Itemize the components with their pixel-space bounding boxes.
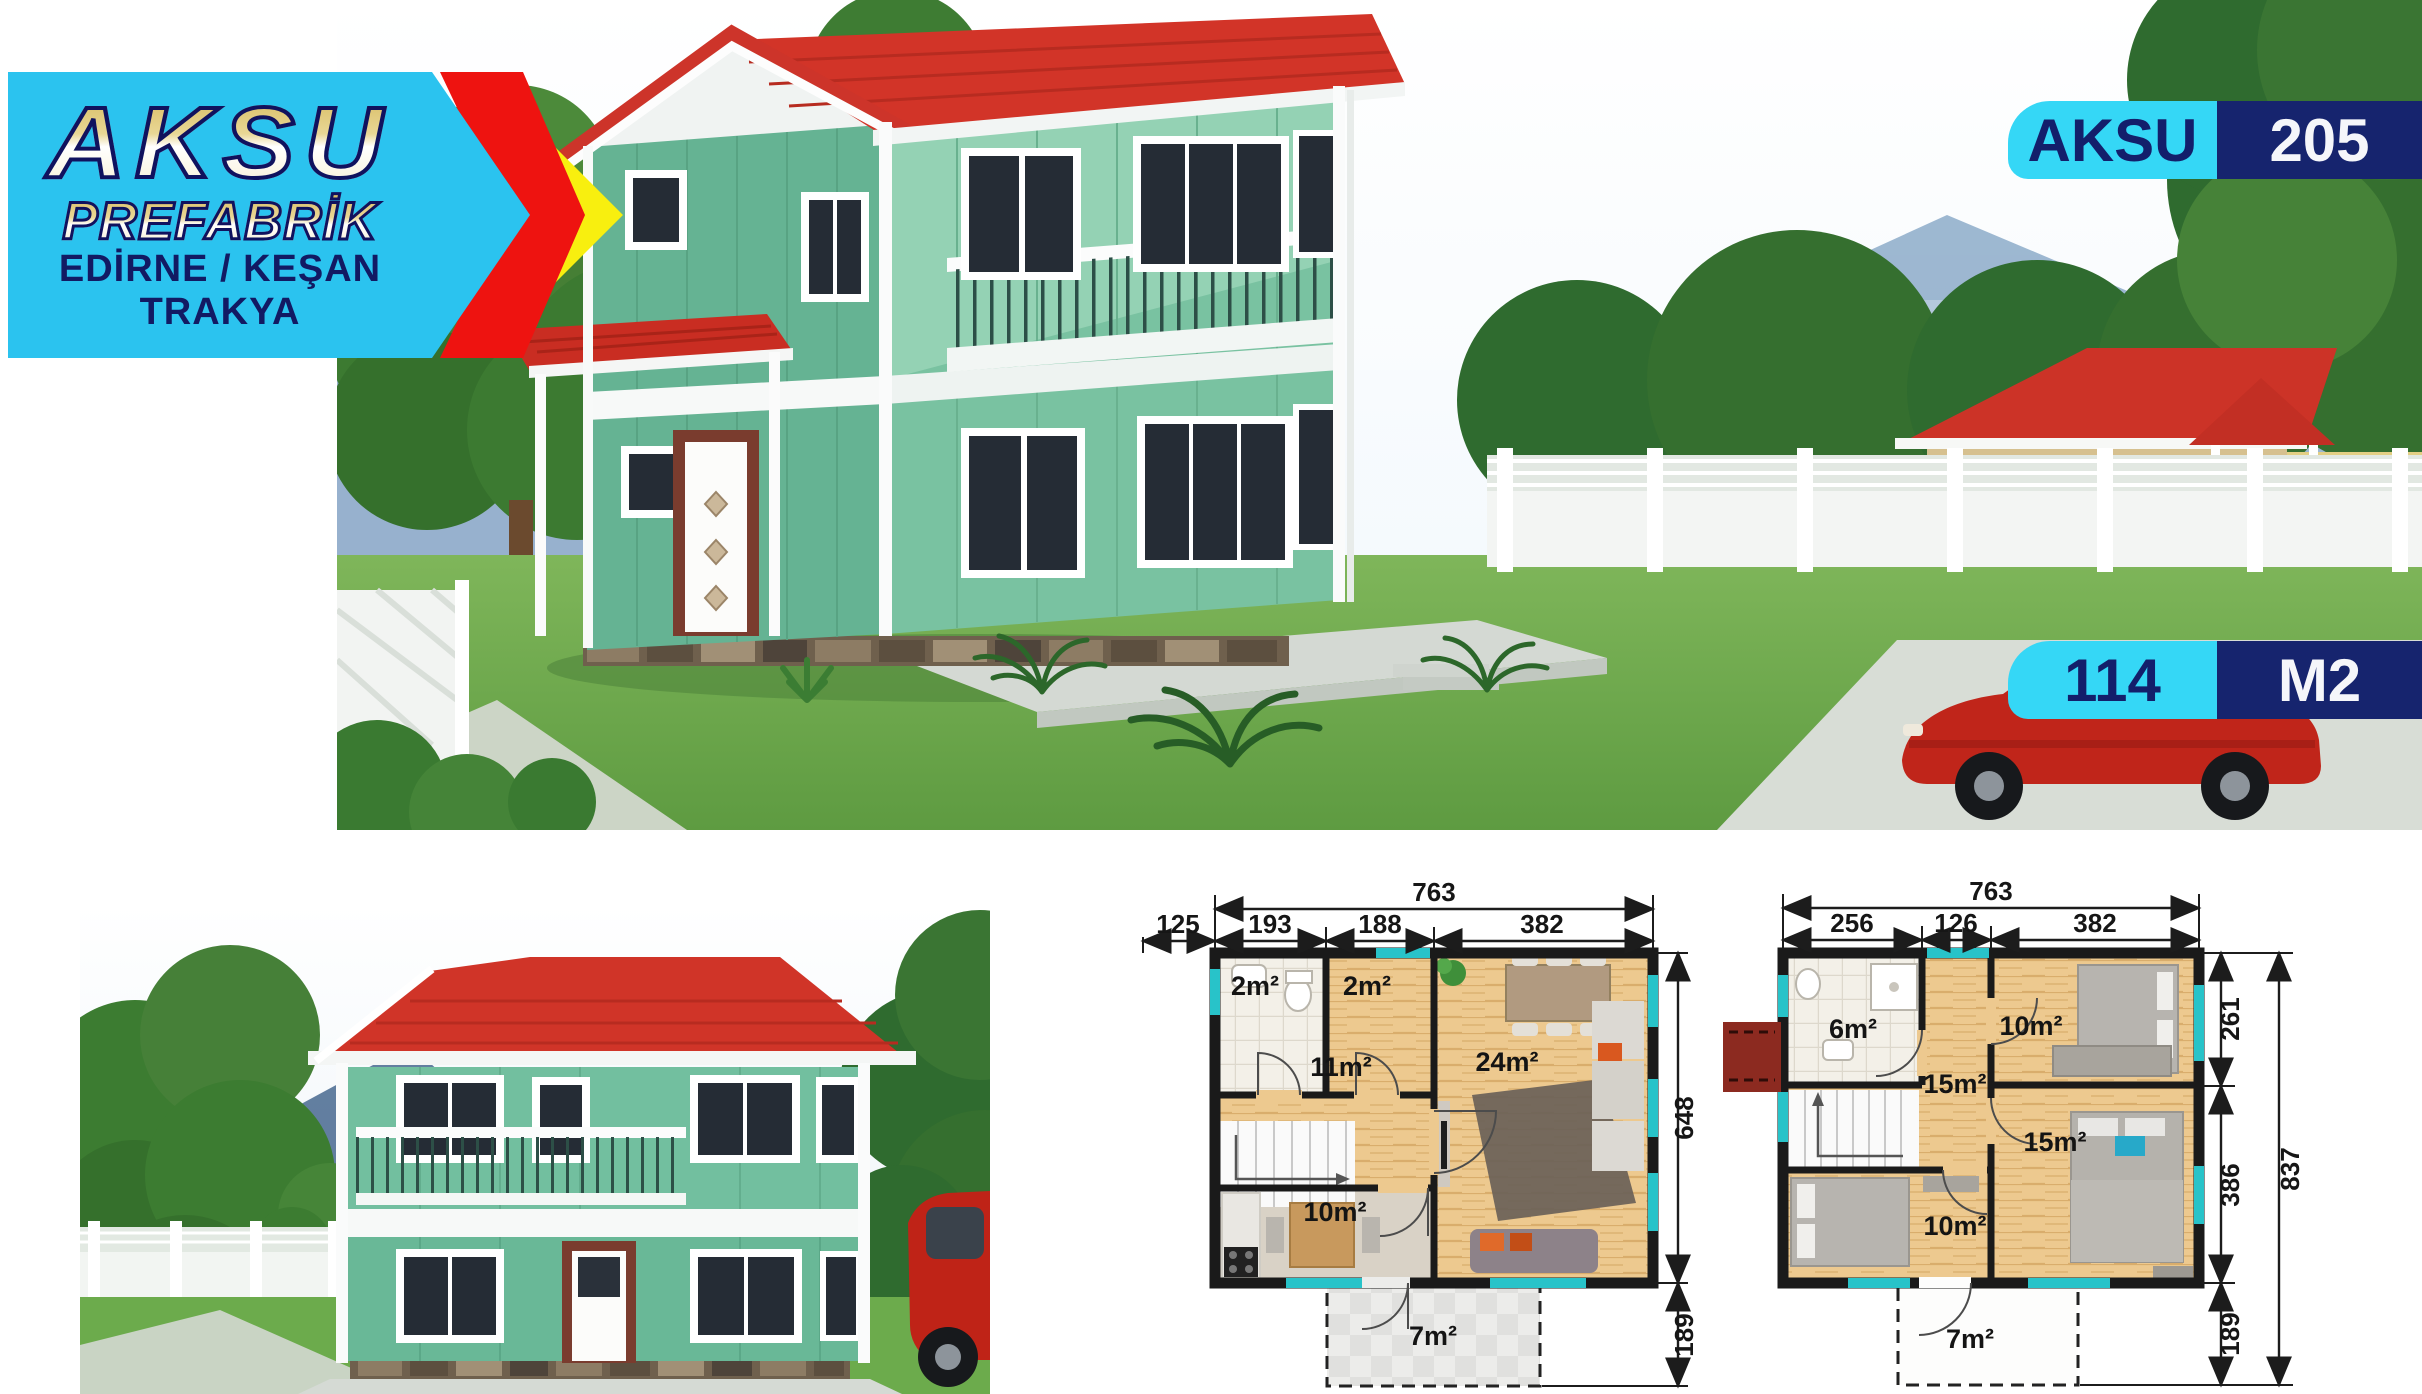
area-badge-unit: M2 — [2217, 641, 2422, 719]
dim-seg-125: 125 — [1156, 909, 1199, 939]
dim-seg-126: 126 — [1934, 908, 1977, 938]
room-label-entry: 2m² — [1343, 971, 1391, 1001]
area-badge-value: 114 — [2008, 641, 2217, 719]
dim-seg-193: 193 — [1248, 909, 1291, 939]
dimensions-top: 763 125 193 188 382 — [1143, 877, 1653, 953]
dim-right-648: 648 — [1669, 1096, 1699, 1139]
dim-seg-382: 382 — [1520, 909, 1563, 939]
dim-seg-382: 382 — [2073, 908, 2116, 938]
upper-floor-plan: 7m² — [1723, 880, 2323, 1394]
model-badge: AKSU 205 — [2008, 101, 2422, 179]
model-badge-number: 205 — [2217, 101, 2422, 179]
dim-total: 763 — [1969, 880, 2012, 906]
dim-seg-256: 256 — [1830, 908, 1873, 938]
dimensions-top: 763 256 126 382 — [1783, 880, 2199, 949]
brochure-page: AKSU PREFABRİK EDİRNE / KEŞAN TRAKYA AKS… — [0, 0, 2422, 1394]
dim-right-189: 189 — [1669, 1313, 1699, 1356]
model-badge-brand: AKSU — [2008, 101, 2217, 179]
furniture-bedroom2 — [2071, 1112, 2193, 1278]
dim-total: 763 — [1412, 877, 1455, 907]
logo-banner: AKSU PREFABRİK EDİRNE / KEŞAN TRAKYA — [8, 72, 628, 358]
corner-post — [879, 122, 892, 636]
room-label-bath: 2m² — [1231, 971, 1279, 1001]
dim-right-837: 837 — [2275, 1147, 2305, 1190]
location-line2: TRAKYA — [140, 291, 301, 334]
room-label-living: 24m² — [1475, 1047, 1538, 1077]
ground-floor-plan: 7m² — [1140, 873, 1700, 1394]
entry-roof-overhang — [1723, 1022, 1781, 1092]
room-label-hall: 15m² — [1923, 1069, 1986, 1099]
room-label-bedroom3: 10m² — [1923, 1211, 1986, 1241]
room-label-bedroom1: 10m² — [1999, 1011, 2062, 1041]
garden-fence — [1487, 448, 2422, 572]
room-label-terrace: 7m² — [1409, 1321, 1457, 1351]
dim-right-261: 261 — [2215, 997, 2245, 1040]
balcony-balusters — [356, 1137, 686, 1195]
area-badge: 114 M2 — [2008, 641, 2422, 719]
balcony-rail-top — [356, 1127, 686, 1138]
front-door — [562, 1241, 636, 1363]
room-label-hall: 11m² — [1310, 1052, 1372, 1082]
room-label-bedroom2: 15m² — [2023, 1127, 2086, 1157]
location-line1: EDİRNE / KEŞAN — [59, 248, 381, 291]
room-label-terrace: 7m² — [1946, 1324, 1994, 1354]
dim-right-386: 386 — [2215, 1163, 2245, 1206]
room-label-bath: 6m² — [1829, 1014, 1877, 1044]
brand-wordmark: AKSU — [48, 97, 393, 189]
brand-subtitle: PREFABRİK — [62, 195, 377, 248]
dim-seg-188: 188 — [1358, 909, 1401, 939]
dim-right-189: 189 — [2215, 1312, 2245, 1355]
floor-band — [338, 1209, 866, 1237]
terrace: 7m² — [1327, 1283, 1540, 1386]
room-label-kitchen: 10m² — [1303, 1197, 1366, 1227]
secondary-render — [80, 905, 990, 1394]
house — [298, 957, 916, 1394]
red-car — [908, 1191, 990, 1387]
